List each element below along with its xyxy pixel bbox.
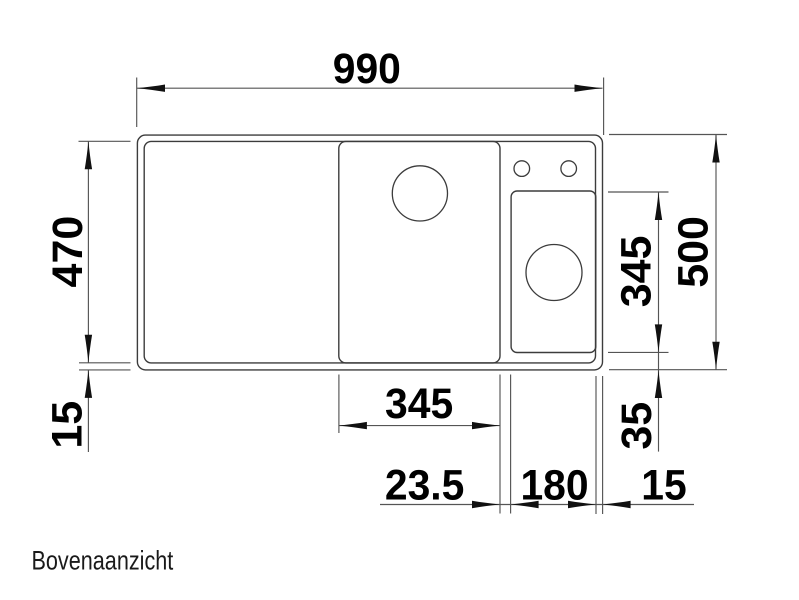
svg-text:15: 15 [43,401,91,449]
svg-text:35: 35 [613,402,661,450]
svg-text:Bovenaanzicht: Bovenaanzicht [32,546,174,576]
svg-text:345: 345 [613,236,661,308]
svg-text:345: 345 [385,379,453,427]
svg-text:23.5: 23.5 [385,460,464,508]
svg-text:15: 15 [641,460,686,508]
svg-text:500: 500 [670,216,718,288]
svg-text:470: 470 [44,216,92,288]
svg-text:990: 990 [333,44,401,92]
svg-text:180: 180 [520,460,588,508]
